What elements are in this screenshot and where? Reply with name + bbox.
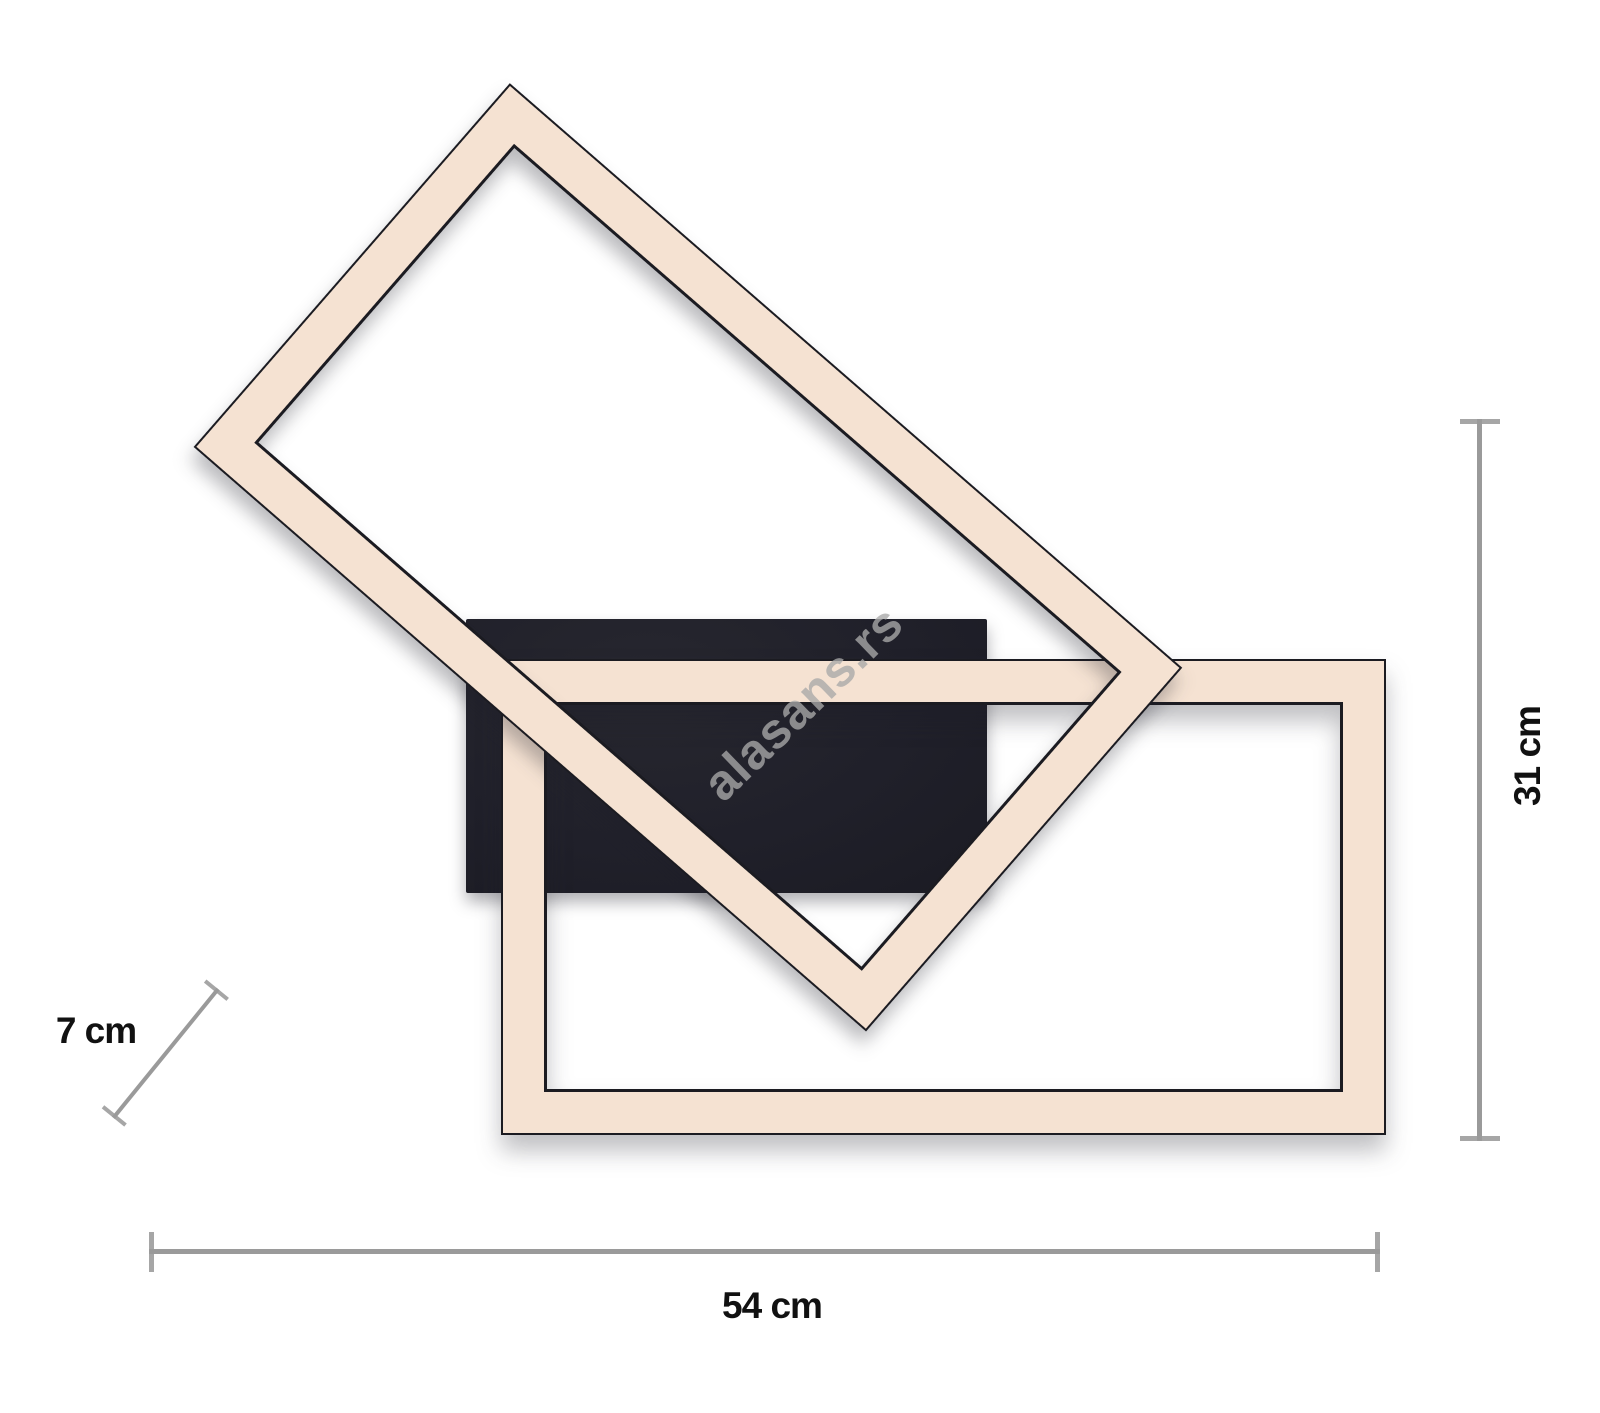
height-dimension-line <box>1477 419 1482 1141</box>
width-dimension-left-cap <box>149 1232 154 1272</box>
width-dimension-right-cap <box>1375 1232 1380 1272</box>
depth-dimension <box>102 980 229 1127</box>
height-dimension <box>1460 419 1500 1141</box>
height-dimension-top-cap <box>1460 419 1500 424</box>
product-dimension-diagram: 54 cm 31 cm 7 cm alasans.rs <box>0 0 1600 1413</box>
depth-dimension-label: 7 cm <box>56 1010 136 1052</box>
width-dimension <box>149 1232 1380 1272</box>
width-dimension-label: 54 cm <box>722 1285 822 1327</box>
height-dimension-label: 31 cm <box>1507 706 1549 806</box>
depth-dimension-line <box>112 988 220 1119</box>
width-dimension-line <box>149 1249 1380 1254</box>
height-dimension-bottom-cap <box>1460 1136 1500 1141</box>
